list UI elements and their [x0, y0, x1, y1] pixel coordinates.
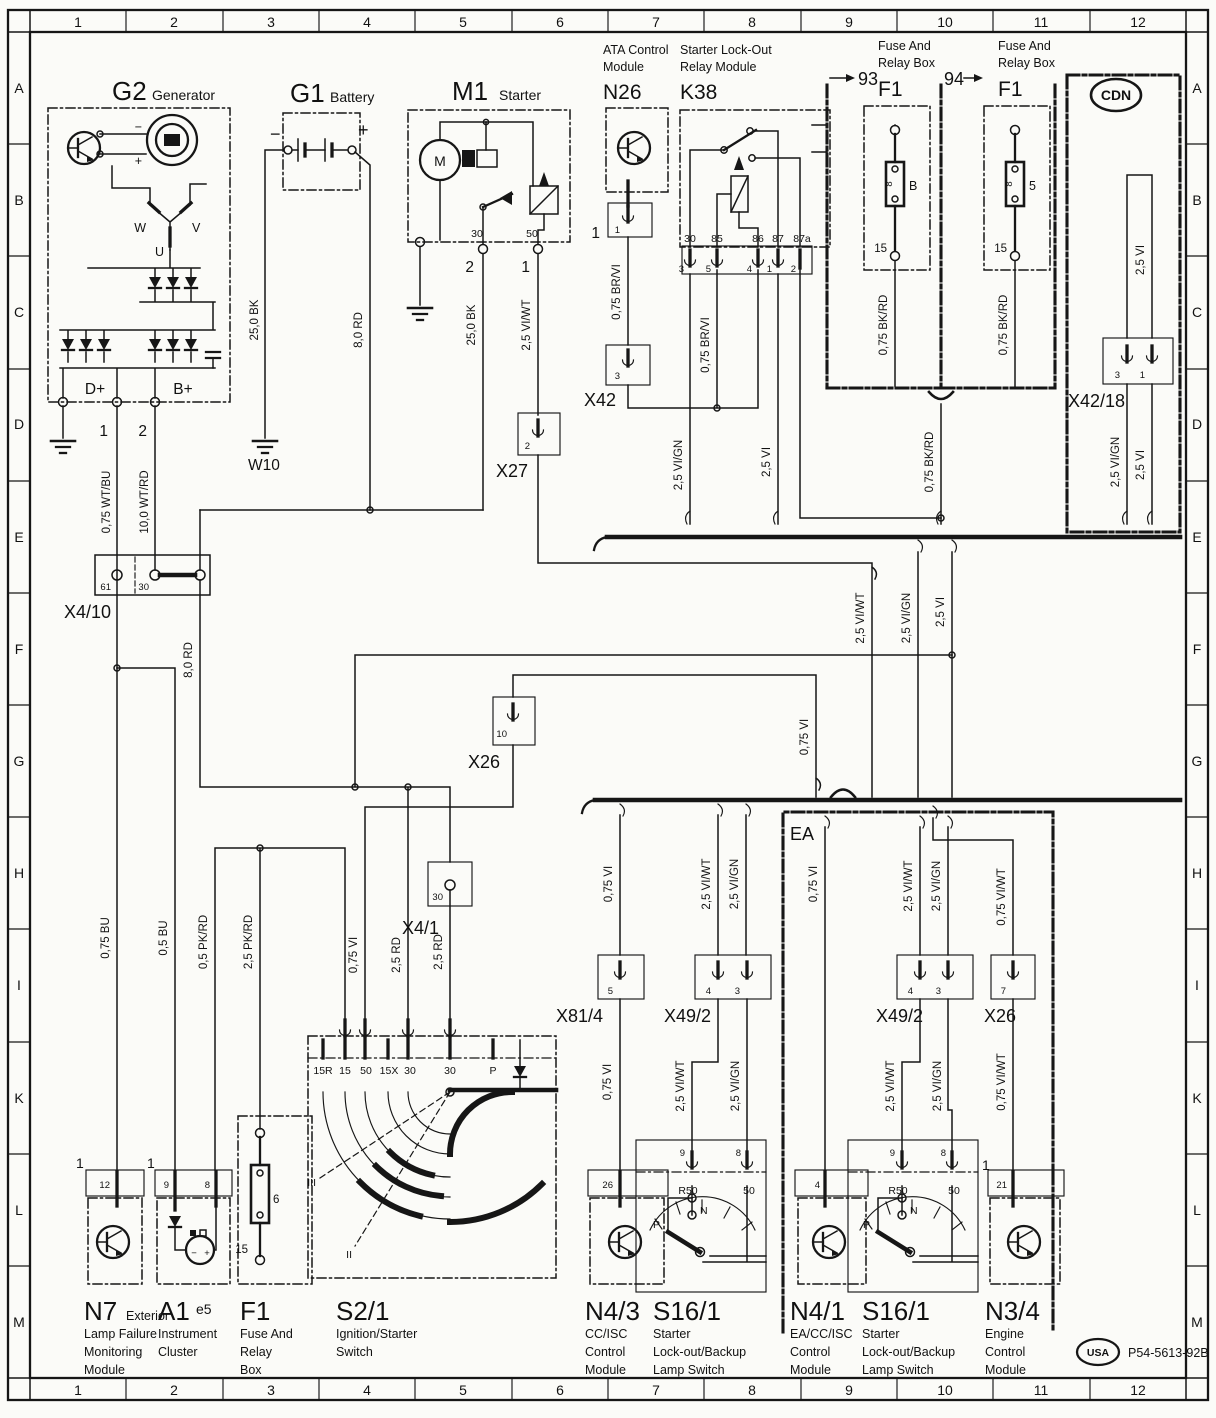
- g1-battery: G1 Battery − + W10 25,0 BK 8,0 RD: [248, 78, 374, 510]
- s16-1-left-switch: 9 8 R50 50 N P: [636, 1140, 766, 1292]
- grid-row-label: F: [1193, 641, 1202, 657]
- component-name: Battery: [330, 89, 374, 105]
- grid-row-label: F: [15, 641, 24, 657]
- title-block: USA P54-5613-92B: [1077, 1339, 1209, 1365]
- connector-id-x27: X27: [496, 461, 528, 481]
- caption-s16l-l2: Starter: [653, 1327, 691, 1341]
- grid-row-label: A: [14, 80, 24, 96]
- f1-terminal-15: 15: [235, 1244, 248, 1256]
- wire-label-brvi-n26: 0,75 BR/VI: [611, 264, 623, 320]
- wire-label-wt-bu: 0,75 WT/BU: [101, 471, 113, 534]
- wire-label-bkrd-94: 0,75 BK/RD: [998, 295, 1010, 356]
- wire-label-vi-ea: 0,75 VI: [808, 866, 820, 902]
- caption-n7-l3: Monitoring: [84, 1345, 142, 1359]
- wire-label-pkrd05: 0,5 PK/RD: [198, 915, 210, 969]
- caption-n4-1-l2: EA/CC/ISC: [790, 1327, 853, 1341]
- wire-label-vign-cdn: 2,5 VI/GN: [1110, 437, 1122, 488]
- grid-col-label: 6: [556, 1382, 564, 1398]
- wire-label-vign-k38: 2,5 VI/GN: [673, 440, 685, 491]
- grid-row-label: M: [1191, 1314, 1203, 1330]
- fuse94-letter: 5: [1029, 179, 1036, 193]
- n26-pin-big: 1: [591, 225, 600, 242]
- grid-row-label: D: [14, 416, 24, 432]
- rotor-plus: +: [135, 154, 142, 168]
- battery-minus: −: [270, 124, 281, 144]
- grid-col-label: 10: [937, 1382, 953, 1398]
- n4-1-pin: 4: [815, 1180, 820, 1191]
- s2-1-ignition-starter-switch: 15R 15 50 15X 30 30 P III II: [307, 1020, 556, 1278]
- stator-u: U: [155, 245, 164, 259]
- wire-label-viwt-s16l: 2,5 VI/WT: [675, 1060, 687, 1111]
- caption-id-s2-1: S2/1: [336, 1296, 390, 1326]
- grid-col-label: 5: [459, 1382, 467, 1398]
- fuse-relay-box-94: 94 Fuse And Relay Box F1 8 5 15 0,75 BK/…: [924, 39, 1056, 524]
- x4-10-terminal-61: 61: [100, 582, 111, 593]
- x49-2r-pin4: 4: [908, 986, 913, 997]
- stator-w: W: [134, 221, 146, 235]
- grid-col-label: 8: [748, 14, 756, 30]
- caption-id-a1: A1: [158, 1296, 190, 1326]
- grid-col-label: 4: [363, 1382, 371, 1398]
- grid-row-label: B: [1192, 192, 1201, 208]
- m1-terminal-50: 50: [526, 228, 538, 240]
- caption-a1-l3: Cluster: [158, 1345, 198, 1359]
- component-name: Module: [603, 60, 644, 74]
- s2-1-position-ii: II: [346, 1249, 352, 1261]
- grid-col-label: 6: [556, 14, 564, 30]
- fuse93-id: F1: [878, 78, 903, 101]
- s2-1-terminal-15r: 15R: [313, 1065, 333, 1077]
- caption-id-n4-3: N4/3: [585, 1296, 640, 1326]
- fuse93-number: 93: [858, 69, 878, 89]
- caption-n4-1-l4: Module: [790, 1363, 831, 1377]
- caption-s16l-l3: Lock-out/Backup: [653, 1345, 746, 1359]
- wire-label-vi-k38: 2,5 VI: [761, 447, 773, 477]
- wire-label-vign-s16r: 2,5 VI/GN: [932, 1061, 944, 1112]
- wire-label-viwt-s16r: 2,5 VI/WT: [885, 1060, 897, 1111]
- x81-4-connector: 5 X81/4 0,75 VI: [556, 955, 644, 1172]
- component-id: K38: [680, 81, 717, 104]
- grid-row-label: G: [14, 753, 25, 769]
- wire-label-brvi-k38: 0,75 BR/VI: [700, 317, 712, 373]
- wire-label-rd8-mid: 8,0 RD: [183, 642, 195, 678]
- caption-s16l-l4: Lamp Switch: [653, 1363, 725, 1377]
- connector-id-x42-18: X42/18: [1068, 391, 1125, 411]
- caption-n3-4-l3: Control: [985, 1345, 1025, 1359]
- grid-col-label: 2: [170, 1382, 178, 1398]
- grid-col-label: 3: [267, 14, 275, 30]
- caption-n4-3-l4: Module: [585, 1363, 626, 1377]
- x49-2-left-connector: 4 3 X49/2 2,5 VI/WT 2,5 VI/GN: [664, 955, 771, 1152]
- harness-bus-g: 0,75 VI 2,5 VI/WT 2,5 VI/GN: [582, 790, 1180, 956]
- component-id: N26: [603, 81, 642, 104]
- grid-row-label: L: [15, 1202, 23, 1218]
- fuse94-id: F1: [998, 78, 1023, 101]
- k38-terminal-86: 86: [752, 233, 764, 245]
- grid-col-label: 11: [1034, 1382, 1049, 1398]
- harness-bus-e: 2,5 VI/GN 2,5 VI: [594, 537, 1180, 797]
- wiring-diagram-page: 1 2 3 4 5 6 7 8 9 10 11 12 1 2 3 4 5 6 7…: [0, 0, 1216, 1418]
- component-name: ATA Control: [603, 43, 669, 57]
- grid-row-label: L: [1193, 1202, 1201, 1218]
- bottom-captions: N7 Exterior Lamp Failure Monitoring Modu…: [84, 1296, 1040, 1377]
- wire-label-bk25-g1: 25,0 BK: [249, 299, 261, 340]
- a1-module: 1 9 8 − +: [147, 1155, 232, 1284]
- ground-id-w10: W10: [248, 457, 280, 474]
- grid-row-label: A: [1192, 80, 1202, 96]
- k38-pin4: 4: [747, 264, 752, 275]
- a1-pin9: 9: [164, 1180, 169, 1191]
- connector-id-x49-2-right: X49/2: [876, 1006, 923, 1026]
- schematic-canvas: 1 2 3 4 5 6 7 8 9 10 11 12 1 2 3 4 5 6 7…: [0, 0, 1216, 1418]
- caption-n4-1-l3: Control: [790, 1345, 830, 1359]
- wire-label-viwt-x49r: 2,5 VI/WT: [903, 860, 915, 911]
- grid-row-label: I: [1195, 977, 1199, 993]
- s2-1-terminal-p: P: [489, 1065, 496, 1077]
- grid-col-label: 4: [363, 14, 371, 30]
- fuse94-name: Relay Box: [998, 56, 1056, 70]
- x4-10-connector: 0,75 WT/BU 10,0 WT/RD 61 30 X4/10 8,0 RD…: [64, 254, 955, 1170]
- k38-pin1: 1: [767, 264, 772, 275]
- motor-m: M: [434, 153, 446, 169]
- k38-pin2: 2: [791, 264, 796, 275]
- x26-right-connector: 7 X26 0,75 VI/WT: [984, 955, 1035, 1172]
- m1-pin1: 1: [521, 259, 530, 276]
- k38-terminal-85: 85: [711, 233, 723, 245]
- s2-1-terminal-15x: 15X: [380, 1065, 399, 1077]
- wire-label-bkrd-bus: 0,75 BK/RD: [924, 432, 936, 493]
- x4-10-terminal-30: 30: [138, 582, 149, 593]
- g2-generator: G2 Generator − + W V U D+ B+ 1 2: [48, 76, 230, 453]
- g2-pin1: 1: [99, 423, 108, 440]
- wire-label-vign-e: 2,5 VI/GN: [901, 593, 913, 644]
- connector-id-x49-2-left: X49/2: [664, 1006, 711, 1026]
- component-id: G2: [112, 76, 147, 106]
- x4-1-terminal-30: 30: [432, 892, 443, 903]
- grid-row-label: C: [14, 304, 24, 320]
- grid-col-label: 1: [74, 1382, 82, 1398]
- wire-label-bkrd-93: 0,75 BK/RD: [878, 295, 890, 356]
- wire-label-bu075: 0,75 BU: [100, 917, 112, 959]
- k38-starter-lockout-relay-module: Starter Lock-Out Relay Module K38 30 85 …: [673, 43, 944, 524]
- a1-pin-big: 1: [147, 1155, 155, 1171]
- terminal-dplus: D+: [85, 381, 105, 398]
- component-name: Starter Lock-Out: [680, 43, 772, 57]
- s2-1-terminal-15: 15: [339, 1065, 351, 1077]
- k38-terminal-87: 87: [772, 233, 784, 245]
- s2-1-terminal-50: 50: [360, 1065, 372, 1077]
- rotor-minus: −: [135, 120, 142, 134]
- cdn-badge: CDN: [1101, 87, 1131, 103]
- x49-2l-pin3: 3: [735, 986, 740, 997]
- k38-terminal-30: 30: [684, 233, 696, 245]
- caption-f1-l2: Relay: [240, 1345, 273, 1359]
- grid-col-label: 7: [652, 1382, 660, 1398]
- s16r-n: N: [910, 1205, 918, 1217]
- wire-label-vi-s50: 0,75 VI: [348, 937, 360, 973]
- grid-row-label: D: [1192, 416, 1202, 432]
- component-name: Starter: [499, 87, 541, 103]
- wire-label-rd25-b: 2,5 RD: [433, 934, 445, 970]
- wire-label-vi-x81: 0,75 VI: [603, 866, 615, 902]
- a1-gauge-minus: −: [191, 1248, 197, 1259]
- wire-label-vign-s16l: 2,5 VI/GN: [730, 1061, 742, 1112]
- f1-fuse-number: 6: [273, 1194, 279, 1206]
- wire-label-bk25-m1: 25,0 BK: [466, 304, 478, 345]
- wire-label-vi-cdn-top: 2,5 VI: [1135, 245, 1147, 275]
- component-id: M1: [452, 76, 488, 106]
- x4-1-connector: 30 X4/1 2,5 RD 2,5 RD: [391, 862, 472, 1028]
- caption-id-n7: N7: [84, 1296, 117, 1326]
- grid-col-label: 12: [1130, 1382, 1146, 1398]
- grid-row-label: M: [13, 1314, 25, 1330]
- caption-s16r-l2: Starter: [862, 1327, 900, 1341]
- usa-badge: USA: [1087, 1347, 1110, 1359]
- grid-col-label: 9: [845, 14, 853, 30]
- caption-id-n3-4: N3/4: [985, 1296, 1040, 1326]
- grid-row-label: E: [14, 529, 23, 545]
- x49-2l-pin4: 4: [706, 986, 711, 997]
- grid-row-label: I: [17, 977, 21, 993]
- n7-module: 1 12: [76, 1155, 144, 1284]
- caption-s2-1-l1: Ignition/Starter: [336, 1327, 417, 1341]
- wire-label-rd8-g1: 8,0 RD: [353, 312, 365, 348]
- wire-label-vi-e: 2,5 VI: [935, 597, 947, 627]
- caption-n7-l2: Lamp Failure: [84, 1327, 157, 1341]
- k38-terminal-87a: 87a: [793, 233, 811, 245]
- caption-n3-4-l2: Engine: [985, 1327, 1024, 1341]
- grid-col-label: 2: [170, 14, 178, 30]
- caption-f1-l1: Fuse And: [240, 1327, 293, 1341]
- fuse93-terminal-15: 15: [874, 243, 887, 255]
- grid-col-label: 8: [748, 1382, 756, 1398]
- wire-label-viwt25-m1: 2,5 VI/WT: [521, 299, 533, 350]
- grid-row-label: C: [1192, 304, 1202, 320]
- s16-1-right-switch: 9 8 R50 50 N P 1: [848, 1140, 990, 1292]
- grid-row-label: B: [14, 192, 23, 208]
- x26-mid-connector: 10 X26 0,75 VI 0,75 VI: [348, 675, 820, 1026]
- k38-pin3: 3: [679, 264, 684, 275]
- caption-id-s16-1-right: S16/1: [862, 1296, 930, 1326]
- grid-row-label: G: [1192, 753, 1203, 769]
- x26-right-pin: 7: [1001, 986, 1006, 997]
- n26-pin: 1: [615, 225, 620, 236]
- wire-label-vi-x26: 0,75 VI: [799, 719, 811, 755]
- s16l-n: N: [700, 1205, 708, 1217]
- a1-pin8: 8: [205, 1180, 210, 1191]
- battery-plus: +: [358, 120, 369, 140]
- grid-col-label: 9: [845, 1382, 853, 1398]
- s16r-pin9: 9: [890, 1148, 895, 1159]
- s16l-pin8: 8: [736, 1148, 741, 1159]
- wire-label-wt-rd: 10,0 WT/RD: [139, 470, 151, 533]
- n7-pin: 12: [99, 1180, 110, 1191]
- connector-id-x26-mid: X26: [468, 752, 500, 772]
- g2-pin2: 2: [138, 423, 147, 440]
- caption-f1-l3: Box: [240, 1363, 262, 1377]
- s2-1-terminal-30a: 30: [404, 1065, 416, 1077]
- caption-n3-4-l4: Module: [985, 1363, 1026, 1377]
- component-id: G1: [290, 78, 325, 108]
- x26-mid-pin: 10: [496, 729, 507, 740]
- caption-a1-e5: e5: [196, 1301, 212, 1317]
- component-name: Generator: [152, 87, 215, 103]
- fuse94-name: Fuse And: [998, 39, 1051, 53]
- n4-3-pin: 26: [602, 1180, 613, 1191]
- s2-1-terminal-30b: 30: [444, 1065, 456, 1077]
- m1-starter: M1 Starter M 30 50 2 1 25,0 BK 2,5 VI/WT: [408, 76, 570, 351]
- n26-ata-control-module: ATA Control Module N26 1 1 0,75 BR/VI: [591, 43, 668, 345]
- connector-id-x81-4: X81/4: [556, 1006, 603, 1026]
- grid-row-label: H: [1192, 865, 1202, 881]
- n3-4-pin: 21: [996, 1180, 1007, 1191]
- s16l-terminal-50: 50: [743, 1185, 755, 1197]
- x42-18-pin3: 3: [1115, 370, 1120, 381]
- wire-label-pkrd25: 2,5 PK/RD: [243, 915, 255, 969]
- caption-id-n4-1: N4/1: [790, 1296, 845, 1326]
- x81-4-pin: 5: [608, 986, 613, 997]
- a1-gauge-plus: +: [204, 1248, 210, 1259]
- m1-pin2: 2: [465, 259, 474, 276]
- x42-18-pin1: 1: [1140, 370, 1145, 381]
- terminal-bplus: B+: [173, 381, 192, 398]
- fuse93-letter: B: [909, 179, 917, 193]
- grid-row-label: H: [14, 865, 24, 881]
- connector-id-x26-right: X26: [984, 1006, 1016, 1026]
- grid-col-label: 1: [74, 14, 82, 30]
- fuse94-terminal-15: 15: [994, 243, 1007, 255]
- wire-label-bu05: 0,5 BU: [158, 920, 170, 955]
- grid-col-label: 10: [937, 14, 953, 30]
- grid-col-label: 5: [459, 14, 467, 30]
- caption-s16r-l3: Lock-out/Backup: [862, 1345, 955, 1359]
- connector-id-x42: X42: [584, 390, 616, 410]
- caption-a1-l2: Instrument: [158, 1327, 218, 1341]
- s16r-pin-big: 1: [982, 1157, 990, 1173]
- wire-label-viwt-n34: 0,75 VI/WT: [996, 1053, 1008, 1111]
- grid-col-label: 7: [652, 14, 660, 30]
- x27-pin: 2: [525, 441, 530, 452]
- x27-connector: 2 X27 2,5 VI/WT: [496, 254, 876, 797]
- wire-label-vi-cdn: 2,5 VI: [1135, 450, 1147, 480]
- grid-row-label: K: [14, 1090, 24, 1106]
- s16r-pin8: 8: [941, 1148, 946, 1159]
- wire-label-vign-x49r: 2,5 VI/GN: [931, 861, 943, 912]
- caption-s2-1-l2: Switch: [336, 1345, 373, 1359]
- fuse93-name: Fuse And: [878, 39, 931, 53]
- grid-col-label: 3: [267, 1382, 275, 1398]
- grid-col-label: 12: [1130, 14, 1146, 30]
- caption-id-f1: F1: [240, 1296, 270, 1326]
- k38-pin5: 5: [706, 264, 711, 275]
- wire-label-rd25-a: 2,5 RD: [391, 937, 403, 973]
- x49-2r-pin3: 3: [936, 986, 941, 997]
- wire-label-vi-n43: 0,75 VI: [602, 1064, 614, 1100]
- component-name: Relay Module: [680, 60, 756, 74]
- caption-n4-3-l3: Control: [585, 1345, 625, 1359]
- fuse93-name: Relay Box: [878, 56, 936, 70]
- connector-id-x4-10: X4/10: [64, 602, 111, 622]
- wire-label-viwt-e: 2,5 VI/WT: [855, 592, 867, 643]
- part-number: P54-5613-92B: [1128, 1346, 1209, 1360]
- wire-label-viwt-x49l: 2,5 VI/WT: [701, 858, 713, 909]
- cdn-section: CDN 2,5 VI 3 1 X42/18 2,5 VI/GN 2,5 VI: [1067, 75, 1180, 532]
- stator-v: V: [192, 221, 201, 235]
- fuse94-fuse-number: 8: [1004, 181, 1015, 186]
- caption-n4-3-l2: CC/ISC: [585, 1327, 627, 1341]
- x42-pin: 3: [615, 371, 620, 382]
- caption-id-s16-1-left: S16/1: [653, 1296, 721, 1326]
- grid-row-label: K: [1192, 1090, 1202, 1106]
- n4-1-module: 4: [795, 1170, 868, 1284]
- fuse94-number: 94: [944, 69, 964, 89]
- n7-pin-big: 1: [76, 1155, 84, 1171]
- f1-fuse-relay-box-bottom: 6 15: [235, 1116, 312, 1284]
- ea-label: EA: [790, 824, 814, 844]
- m1-terminal-30: 30: [471, 228, 483, 240]
- s16l-pin9: 9: [680, 1148, 685, 1159]
- s16r-terminal-50: 50: [948, 1185, 960, 1197]
- x49-2-right-connector: 4 3 X49/2 2,5 VI/WT 2,5 VI/GN: [876, 955, 973, 1152]
- fuse93-fuse-number: 8: [884, 181, 895, 186]
- wire-label-vign-x49l: 2,5 VI/GN: [729, 859, 741, 910]
- caption-n7-l4: Module: [84, 1363, 125, 1377]
- caption-s16r-l4: Lamp Switch: [862, 1363, 934, 1377]
- grid-row-label: E: [1192, 529, 1201, 545]
- wire-label-viwt-x26r: 0,75 VI/WT: [996, 868, 1008, 926]
- grid-col-label: 11: [1034, 14, 1049, 30]
